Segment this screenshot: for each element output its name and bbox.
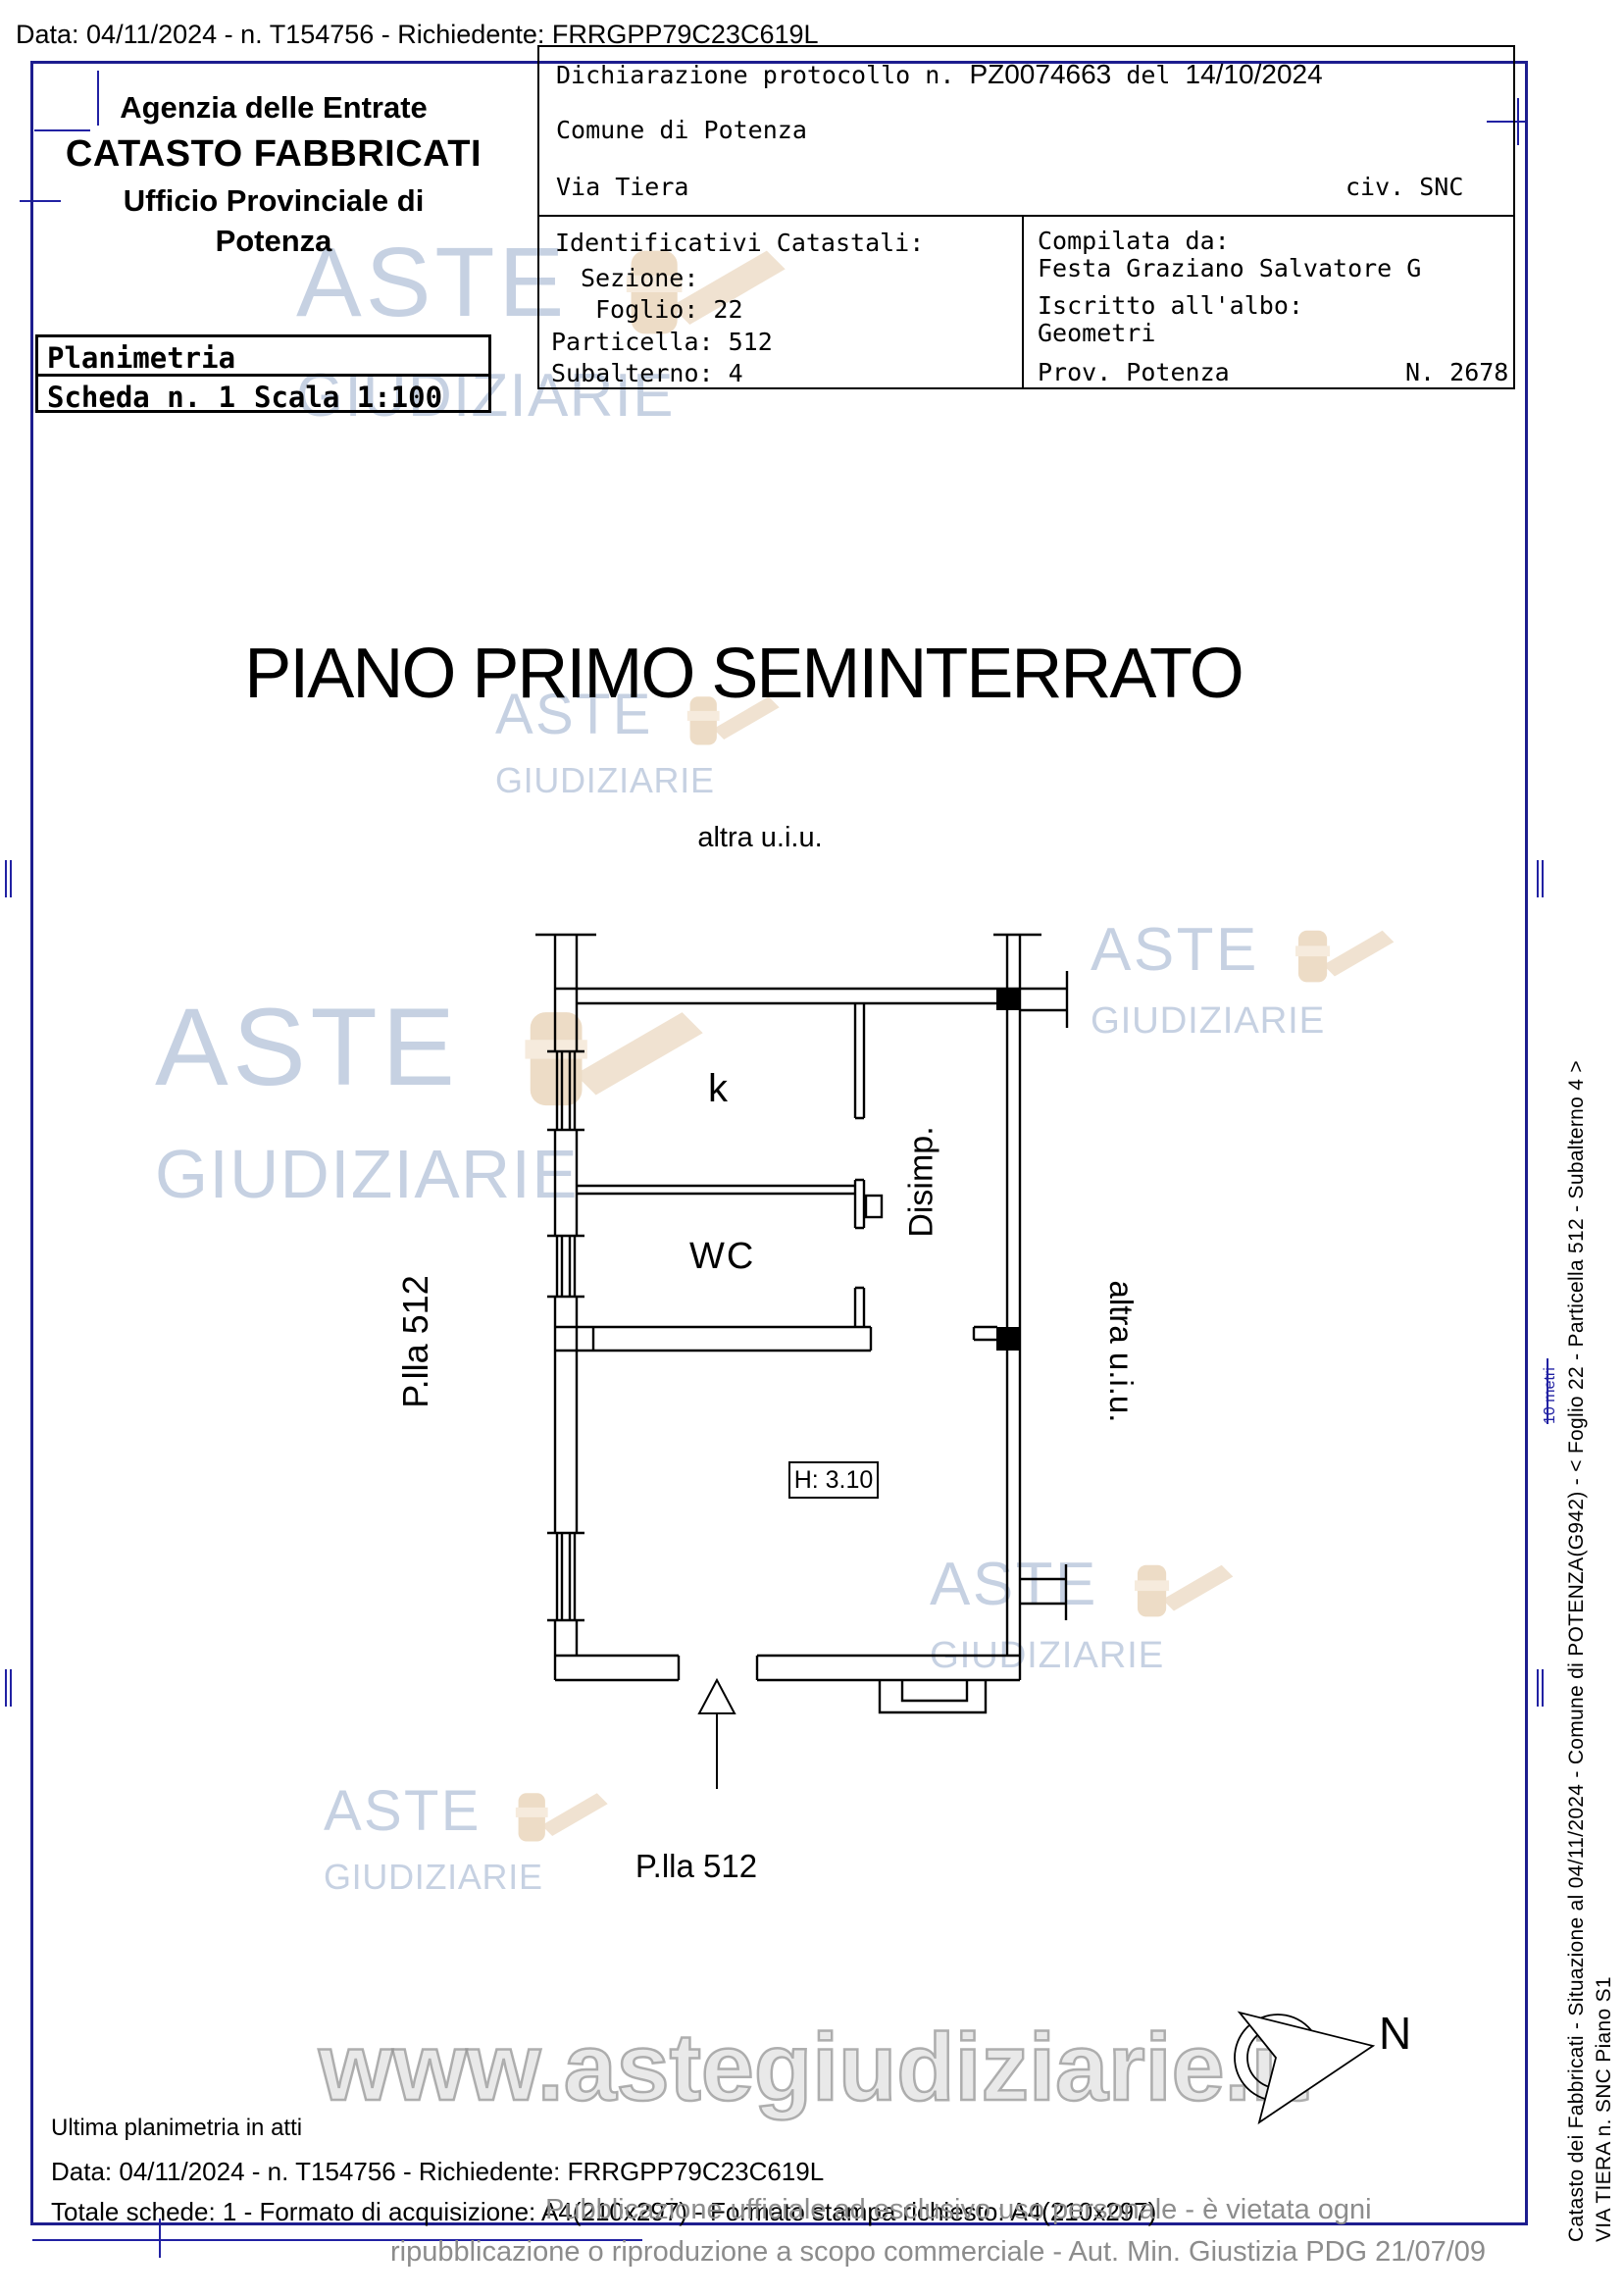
sidebar-cadastre-line: Catasto dei Fabbricati - Situazione al 0… <box>1565 1060 1589 2242</box>
scale-note: 10 metri <box>1542 1367 1559 1424</box>
declaration-vertical-divider <box>1022 215 1024 387</box>
compiler-number: N. 2678 <box>1405 358 1508 386</box>
declaration-divider <box>539 215 1513 217</box>
protocol-mid: del <box>1126 61 1170 89</box>
agency-name: Agenzia delle Entrate <box>57 90 490 126</box>
compass-north-label: N <box>1379 2007 1411 2060</box>
comune-line: Comune di Potenza <box>556 116 807 144</box>
compiler-label: Compilata da: <box>1038 227 1230 255</box>
room-label-disimp: Disimp. <box>903 1126 941 1237</box>
cadastre-title: CATASTO FABBRICATI <box>57 133 490 176</box>
albo-value: Geometri <box>1038 319 1155 347</box>
label-particella-bottom: P.lla 512 <box>588 1848 804 1885</box>
room-label-wc: WC <box>689 1236 755 1278</box>
protocol-date: 14/10/2024 <box>1186 59 1323 89</box>
protocol-prefix: Dichiarazione protocollo n. <box>556 61 954 89</box>
albo-label: Iscritto all'albo: <box>1038 291 1303 320</box>
protocol-number: PZ0074663 <box>969 59 1111 89</box>
sidebar-address-line: VIA TIERA n. SNC Piano S1 <box>1593 1976 1616 2242</box>
label-altra-uiu-top: altra u.i.u. <box>628 822 892 854</box>
compiler-prov: Prov. Potenza <box>1038 358 1230 386</box>
disclaimer-line1: Pubblicazione ufficiale ad esclusivo uso… <box>545 2194 1372 2226</box>
label-altra-uiu-right: altra u.i.u. <box>1102 1281 1140 1423</box>
agency-header: Agenzia delle Entrate CATASTO FABBRICATI… <box>57 90 490 259</box>
identifier-subalterno: Subalterno: 4 <box>551 359 743 387</box>
footer-note: Ultima planimetria in atti <box>51 2115 302 2142</box>
label-particella-left: P.lla 512 <box>395 1275 436 1407</box>
office-city: Potenza <box>57 224 490 259</box>
room-label-k: k <box>708 1067 728 1111</box>
identifier-sezione: Sezione: <box>581 264 698 292</box>
identifiers-title: Identificativi Catastali: <box>555 229 924 257</box>
footer-request-line: Data: 04/11/2024 - n. T154756 - Richiede… <box>51 2157 824 2187</box>
planimetria-table-row2: Scheda n. 1 Scala 1:100 <box>38 377 488 412</box>
height-note-box: H: 3.10 <box>788 1461 879 1499</box>
office-line: Ufficio Provinciale di <box>57 183 490 219</box>
planimetria-table-row1: Planimetria <box>38 337 488 377</box>
planimetria-table: Planimetria Scheda n. 1 Scala 1:100 <box>35 334 491 413</box>
disclaimer-line2: ripubblicazione o riproduzione a scopo c… <box>390 2236 1486 2269</box>
scala-value: Scala 1:100 <box>254 381 442 414</box>
declaration-box: Dichiarazione protocollo n. PZ0074663 de… <box>537 45 1515 389</box>
identifier-foglio: Foglio: 22 <box>595 295 743 324</box>
scheda-number: Scheda n. 1 <box>47 381 235 414</box>
planimetria-page: ASTE GIUDIZIARIE ASTE GIUDIZIARIE ASTE <box>0 0 1624 2296</box>
civic-number: civ. SNC <box>1345 173 1463 201</box>
street-line: Via Tiera <box>556 173 688 201</box>
protocol-line: Dichiarazione protocollo n. PZ0074663 de… <box>556 59 1323 90</box>
identifier-particella: Particella: 512 <box>551 328 773 356</box>
plan-title: PIANO PRIMO SEMINTERRATO <box>126 634 1361 714</box>
compiler-name: Festa Graziano Salvatore G <box>1038 254 1421 282</box>
